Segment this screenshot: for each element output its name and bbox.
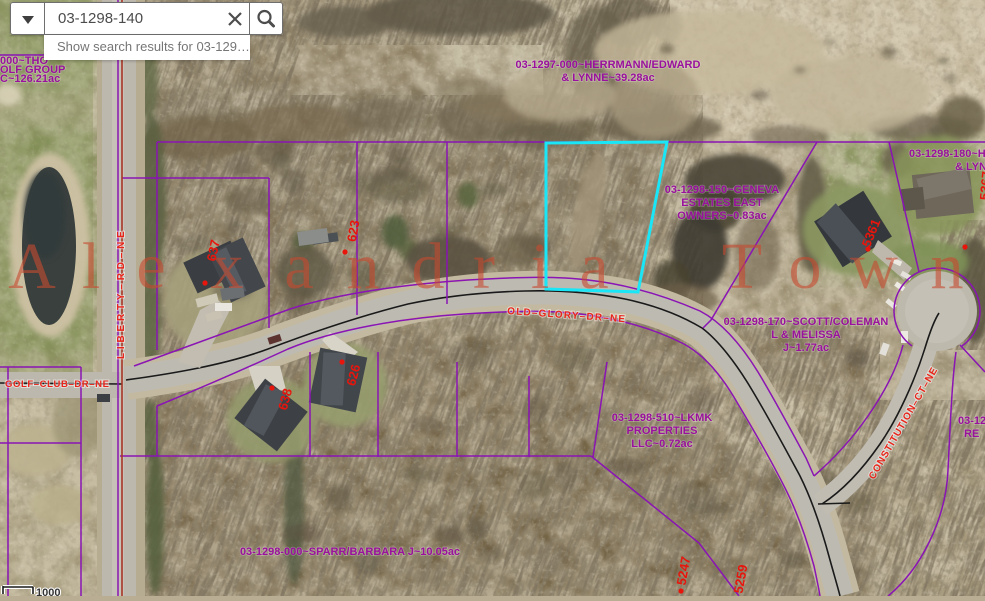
svg-text:ESTATES EAST: ESTATES EAST [681,197,763,209]
svg-text:& LYNNE~39.28ac: & LYNNE~39.28ac [561,72,654,84]
svg-text:L & MELISSA: L & MELISSA [771,329,841,341]
svg-text:i: i [531,230,549,303]
svg-text:C~126.21ac: C~126.21ac [0,73,60,85]
svg-text:03-1297-000~HERRMANN/EDWARD: 03-1297-000~HERRMANN/EDWARD [516,59,701,71]
svg-text:03-1298-000~SPARR/BARBARA J~10: 03-1298-000~SPARR/BARBARA J~10.05ac [240,546,460,558]
svg-text:e: e [136,230,165,303]
svg-text:J~1.77ac: J~1.77ac [783,342,829,354]
svg-text:03-1298-180~H: 03-1298-180~H [909,148,985,160]
svg-text:& LYN: & LYN [955,161,985,173]
svg-text:GOLF–CLUB–DR–NE: GOLF–CLUB–DR–NE [5,379,110,390]
svg-text:03-1298-170~SCOTT/COLEMAN: 03-1298-170~SCOTT/COLEMAN [724,316,889,328]
svg-text:A: A [8,230,56,303]
svg-text:1000: 1000 [36,587,60,596]
svg-text:03-1298-150~GENEVA: 03-1298-150~GENEVA [665,184,780,196]
svg-text:03-12: 03-12 [958,415,985,427]
svg-text:n: n [931,230,964,303]
svg-text:a: a [579,230,608,303]
svg-text:PROPERTIES: PROPERTIES [627,425,698,437]
svg-text:a: a [284,230,313,303]
svg-text:03-1298-510~LKMK: 03-1298-510~LKMK [612,412,713,424]
svg-text:5367: 5367 [977,171,985,201]
svg-text:o: o [789,230,822,303]
svg-text:LIBERTY–RD–NE: LIBERTY–RD–NE [116,227,127,359]
svg-text:r: r [473,230,495,303]
svg-text:T: T [722,230,762,303]
svg-text:OWNERS~0.83ac: OWNERS~0.83ac [677,210,767,222]
svg-text:d: d [412,230,445,303]
svg-text:l: l [82,230,100,303]
svg-text:LLC~0.72ac: LLC~0.72ac [631,438,692,450]
svg-text:RE: RE [964,428,979,440]
